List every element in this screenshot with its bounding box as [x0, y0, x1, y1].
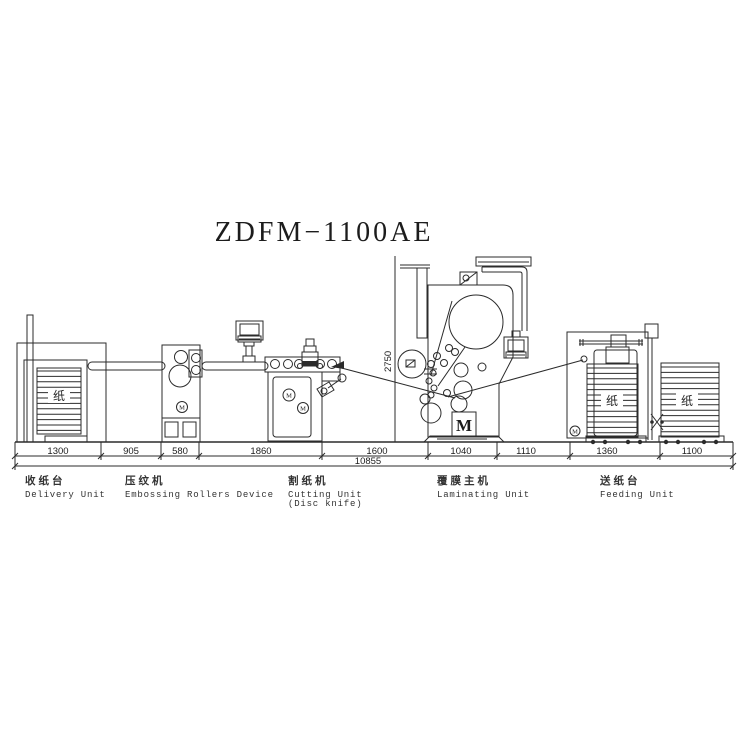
main-motor-label: M	[456, 416, 472, 435]
unit-label-en2: (Disc knife)	[288, 499, 362, 509]
unit-labels: 收纸台 Delivery Unit 压纹机 Embossing Rollers …	[25, 474, 674, 509]
height-dim-value: 2750	[383, 351, 394, 372]
paper-label: 纸	[53, 389, 65, 403]
motor-label: M	[300, 406, 306, 413]
paper-label: 纸	[606, 394, 618, 408]
machine-line-diagram: ZDFM−1100AE 纸 M	[0, 0, 750, 750]
dim-value: 1100	[682, 446, 702, 457]
laminating-unit: M	[398, 257, 531, 442]
embossing-unit: M	[162, 345, 202, 442]
dim-value: 1300	[47, 446, 68, 457]
dim-value: 905	[123, 446, 139, 457]
unit-label-zh: 割纸机	[288, 474, 329, 487]
dim-value: 580	[172, 446, 188, 457]
motor-label: M	[572, 429, 578, 436]
dimension-lines: 1300 905 580 1860 1600 1040 1110 1360 11…	[12, 442, 736, 470]
dim-value: 1360	[596, 446, 617, 457]
dim-value: 1040	[450, 446, 471, 457]
motor-label: M	[179, 405, 185, 412]
dim-value: 1110	[516, 446, 536, 457]
unit-label-zh: 送纸台	[599, 474, 641, 487]
total-dim-value: 10855	[355, 456, 381, 467]
paper-label: 纸	[681, 394, 693, 408]
dim-value: 1860	[250, 446, 271, 457]
feeding-unit: 纸 M 纸	[567, 324, 724, 444]
height-dimension: 2750	[383, 256, 395, 442]
unit-label-en: Delivery Unit	[25, 490, 106, 500]
diagram-title: ZDFM−1100AE	[215, 217, 434, 248]
unit-label-en: Laminating Unit	[437, 490, 530, 500]
motor-label: M	[286, 393, 292, 400]
unit-label-en: Embossing Rollers Device	[125, 490, 274, 500]
control-monitor	[236, 321, 263, 362]
delivery-unit: 纸	[17, 315, 106, 442]
unit-label-zh: 覆膜主机	[437, 474, 491, 487]
unit-label-zh: 压纹机	[125, 474, 166, 487]
cutting-unit: M M	[265, 339, 346, 441]
diagram-canvas: ZDFM−1100AE 纸 M	[0, 0, 750, 750]
unit-label-zh: 收纸台	[25, 474, 66, 487]
unit-label-en: Feeding Unit	[600, 490, 674, 500]
